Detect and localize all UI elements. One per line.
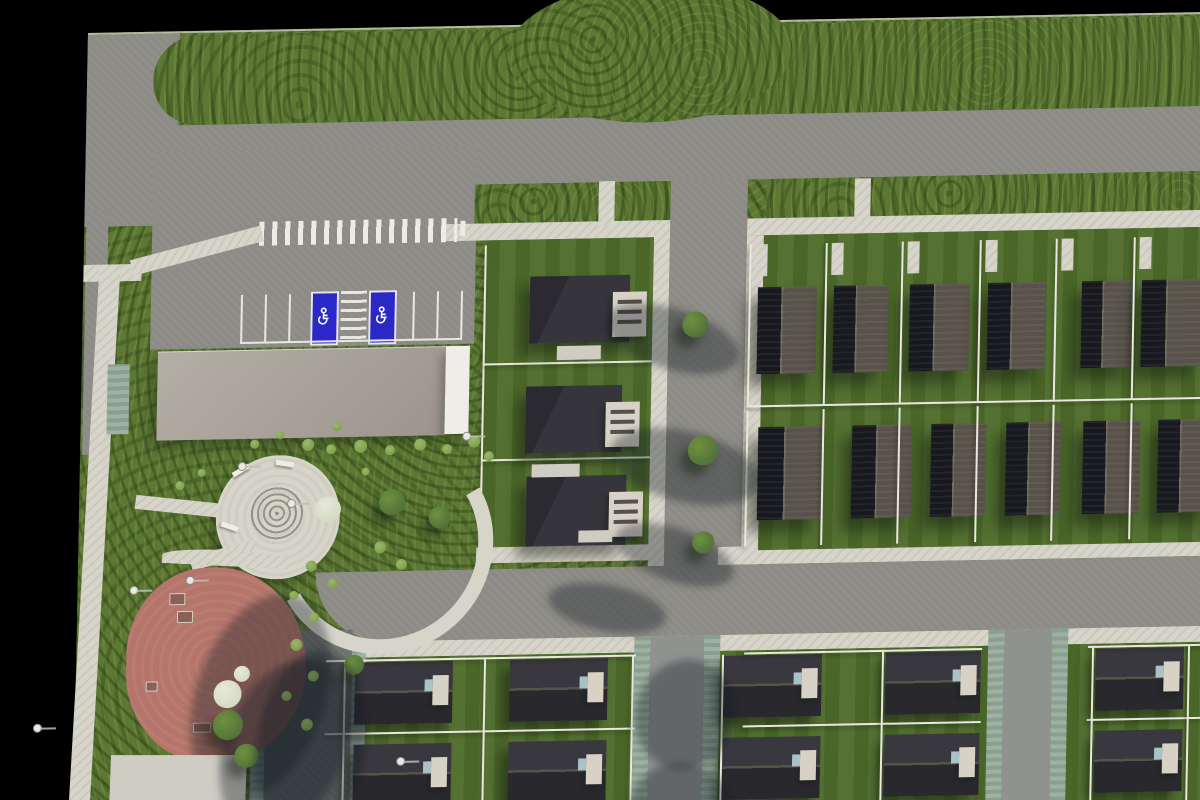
lot-fence — [1185, 646, 1190, 800]
house-porch — [587, 672, 604, 702]
house-porch — [1163, 661, 1180, 691]
house-porch — [959, 747, 976, 777]
row-fence — [743, 721, 981, 727]
bush — [362, 468, 370, 476]
house-roof — [507, 740, 606, 800]
bush — [309, 612, 319, 622]
bush — [484, 451, 494, 461]
row-fence — [325, 727, 635, 735]
house-roof — [832, 285, 889, 373]
bush — [198, 469, 206, 477]
bush — [290, 639, 302, 651]
house-roof — [723, 654, 822, 718]
house-roof — [721, 736, 820, 800]
site-plan-render — [0, 0, 1200, 800]
lamp-post — [238, 462, 247, 471]
lot-fence — [747, 244, 752, 405]
house-roof — [1080, 280, 1134, 368]
house-roof — [883, 733, 979, 797]
lot-fence — [1053, 239, 1058, 400]
entry-pad — [831, 243, 844, 275]
lamp-post — [129, 586, 138, 595]
bush — [332, 422, 341, 431]
house-roof — [885, 651, 981, 715]
flowering-tree — [213, 680, 242, 709]
entry-pad — [985, 240, 998, 272]
house-roof — [756, 286, 817, 374]
house-porch — [432, 675, 449, 705]
flowering-tree — [234, 666, 250, 682]
house-porch — [1162, 743, 1179, 773]
bush — [396, 559, 407, 570]
entry-pad — [907, 241, 920, 273]
bush — [354, 440, 367, 453]
house-roof — [908, 283, 970, 371]
tree — [379, 489, 405, 515]
bush — [326, 444, 336, 454]
house-roof — [352, 743, 451, 800]
bush — [327, 578, 337, 588]
row-fence — [1087, 714, 1200, 721]
bush — [385, 445, 395, 455]
entry-pad — [1061, 238, 1074, 270]
house-roof — [1093, 729, 1182, 793]
flowering-tree — [315, 496, 341, 522]
house-porch — [586, 754, 603, 784]
development-site — [73, 9, 1200, 800]
lot-fence — [899, 242, 904, 403]
house-roof — [986, 282, 1046, 370]
lamp-post — [287, 499, 296, 508]
bush — [306, 561, 317, 572]
house-roof — [1157, 419, 1200, 513]
lot-fence — [823, 243, 828, 404]
house-porch — [431, 757, 448, 787]
patio-pad — [531, 464, 579, 478]
tree-shadow — [543, 574, 670, 642]
house-porch — [800, 750, 817, 780]
bush — [374, 541, 386, 553]
patio-pad — [578, 530, 612, 543]
bush — [302, 439, 314, 451]
bush — [175, 481, 184, 490]
bush — [442, 444, 452, 454]
entry-pad — [1139, 237, 1152, 269]
bush — [289, 591, 298, 600]
lamp-post — [186, 576, 195, 585]
house-roof — [509, 658, 608, 722]
bush — [250, 440, 259, 449]
entry-pad — [755, 244, 768, 276]
house-porch — [960, 665, 977, 695]
house-roof — [354, 661, 453, 725]
lot-fence — [977, 240, 982, 401]
patio-pad — [557, 345, 601, 360]
house-roof — [1140, 279, 1200, 367]
lamp-post — [33, 724, 42, 733]
lot-fence — [1131, 237, 1136, 398]
house-porch — [801, 668, 818, 698]
house-roof — [757, 426, 824, 520]
house-roof — [851, 424, 913, 518]
bush — [414, 438, 426, 450]
tree — [429, 506, 451, 528]
bush — [276, 431, 284, 439]
house-roof — [1095, 647, 1184, 711]
